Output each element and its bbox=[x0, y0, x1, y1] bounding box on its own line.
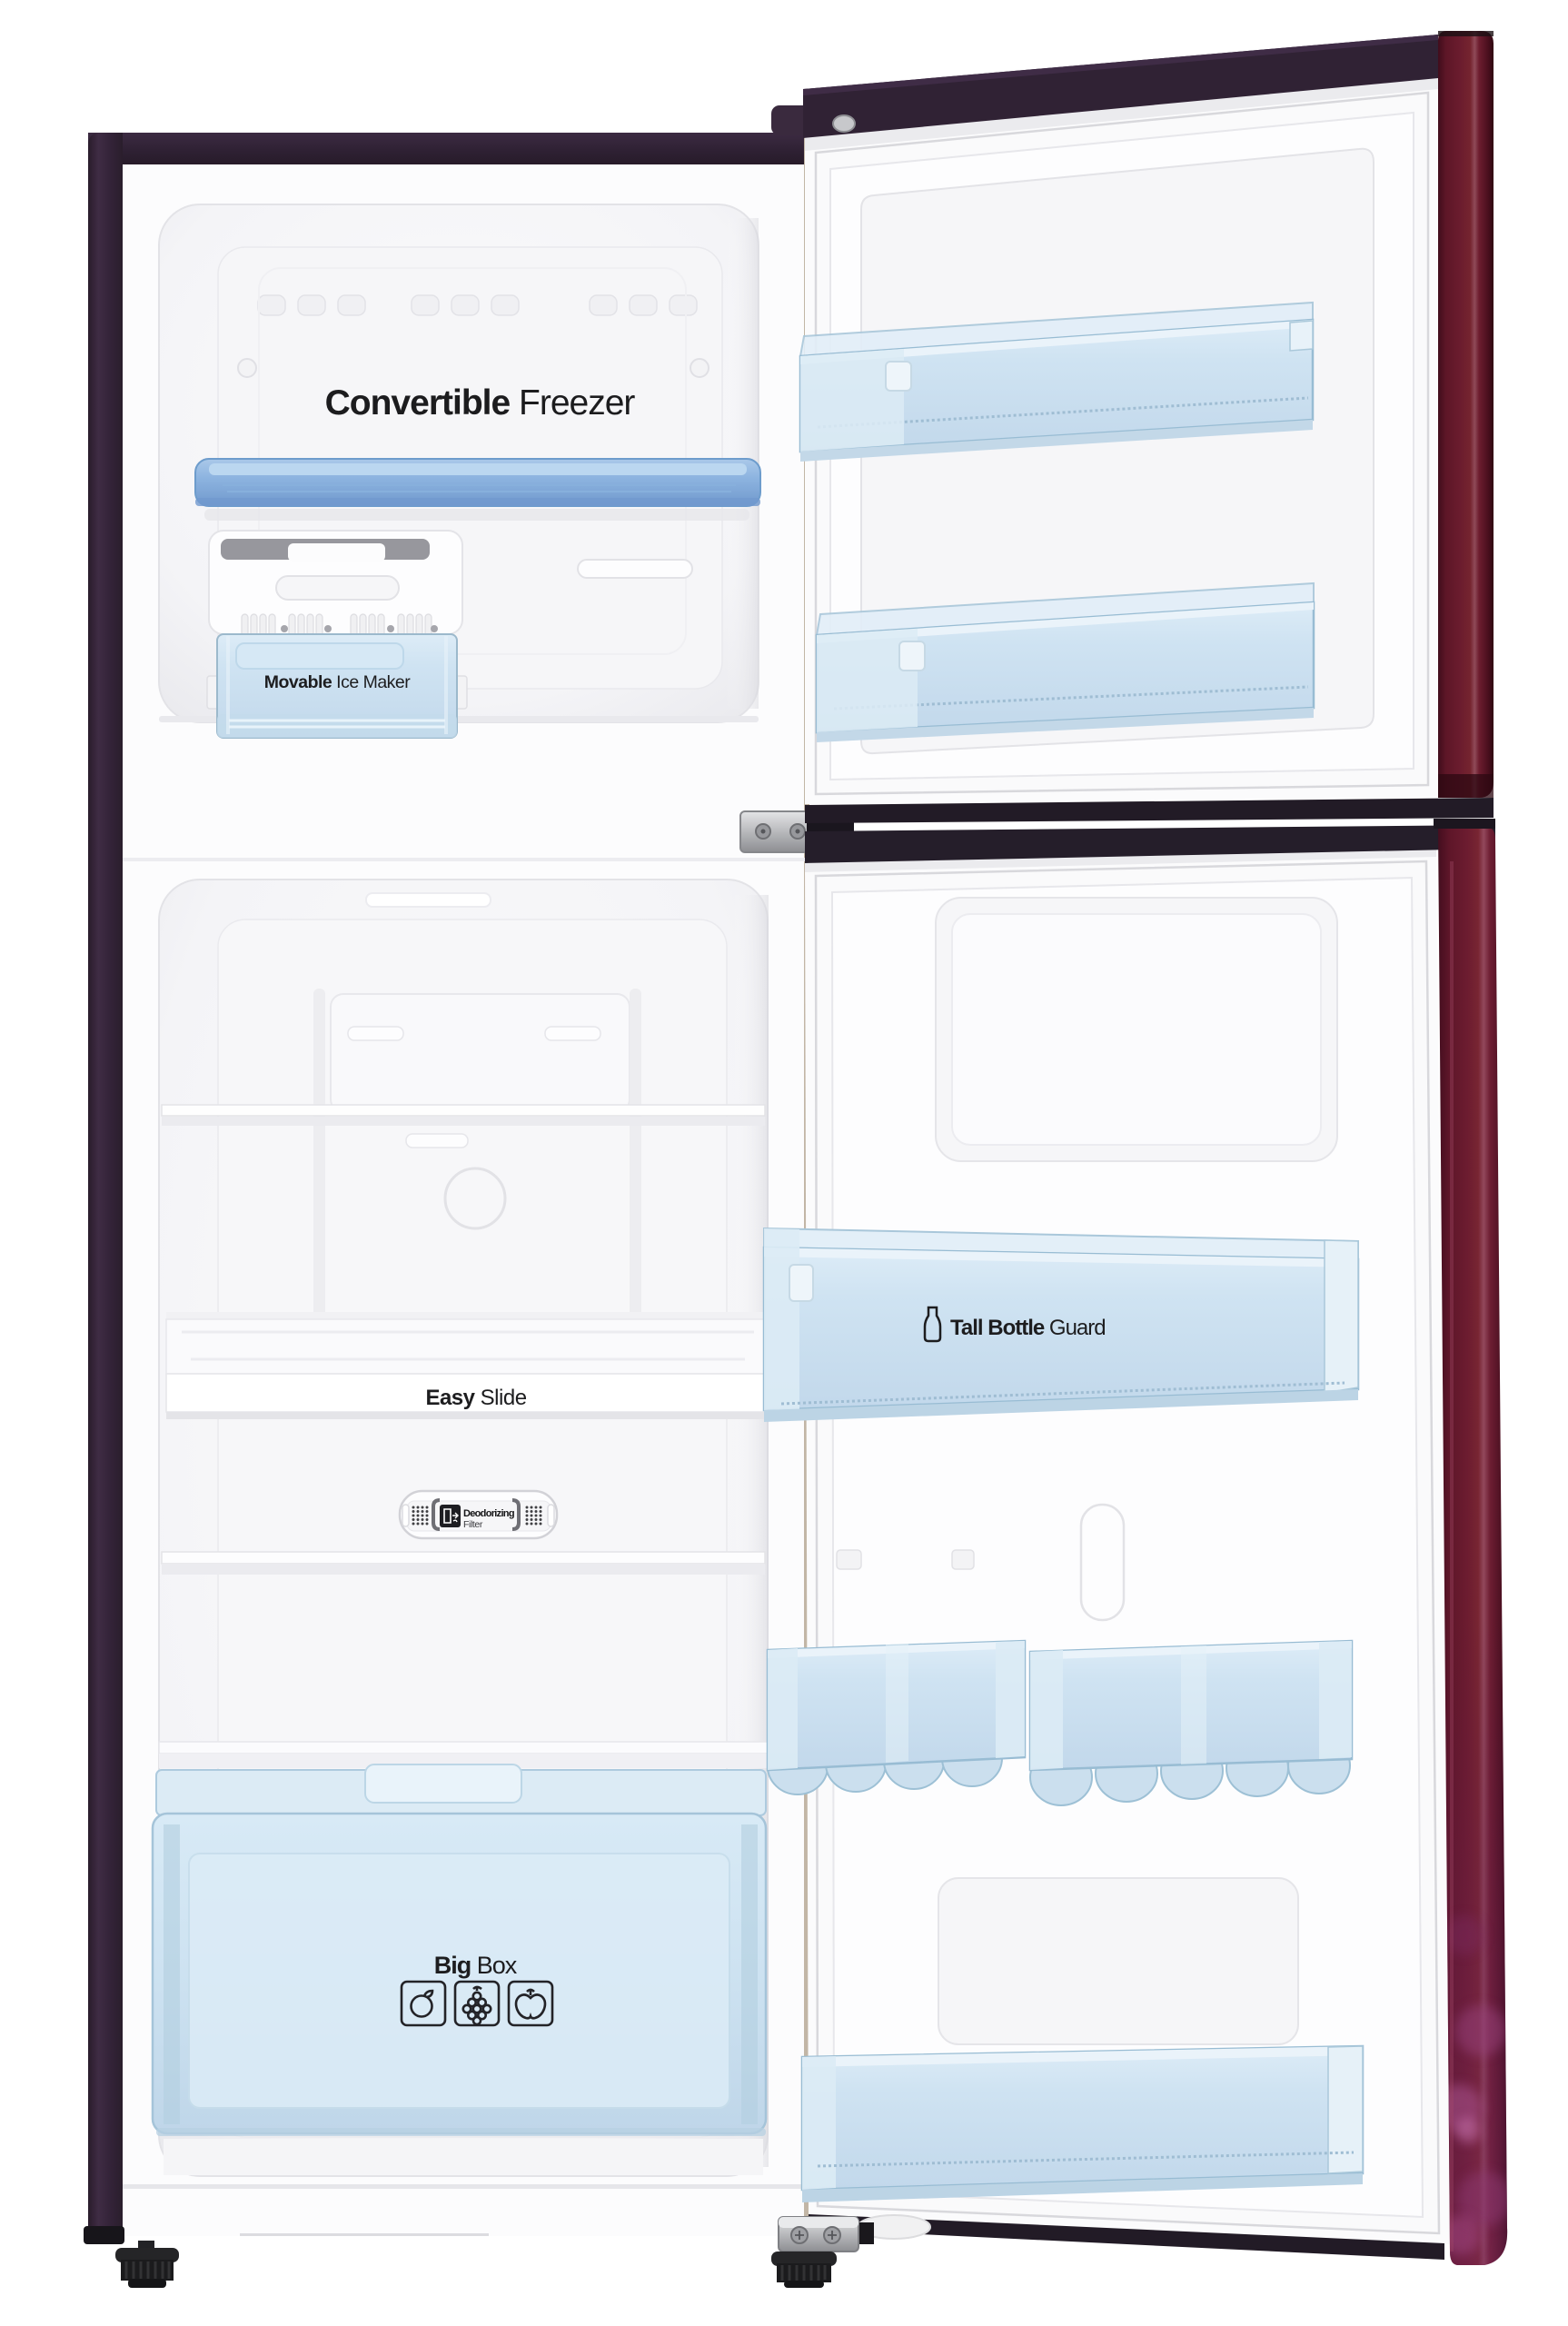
svg-text:Filter: Filter bbox=[463, 1519, 483, 1530]
svg-text:Easy Slide: Easy Slide bbox=[425, 1386, 526, 1410]
svg-text:Convertible Freezer: Convertible Freezer bbox=[325, 383, 636, 422]
svg-text:Tall Bottle Guard: Tall Bottle Guard bbox=[950, 1316, 1106, 1340]
svg-text:Big Box: Big Box bbox=[434, 1952, 518, 1979]
svg-text:Movable Ice Maker: Movable Ice Maker bbox=[264, 672, 412, 692]
svg-text:Deodorizing: Deodorizing bbox=[463, 1508, 514, 1519]
